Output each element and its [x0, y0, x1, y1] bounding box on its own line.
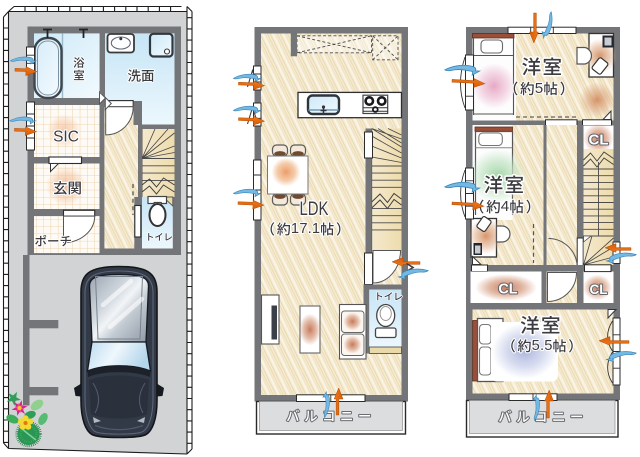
svg-text:SIC: SIC [53, 129, 79, 146]
svg-text:1: 1 [312, 221, 320, 237]
svg-text:5: 5 [532, 338, 540, 354]
svg-text:1: 1 [291, 221, 299, 237]
svg-text:CL: CL [498, 281, 517, 297]
svg-text:4: 4 [501, 198, 509, 215]
svg-text:7: 7 [299, 221, 307, 237]
svg-text:LDK: LDK [300, 198, 329, 220]
svg-text:5: 5 [535, 80, 543, 97]
svg-text:CL: CL [590, 282, 608, 297]
svg-text:5: 5 [544, 338, 552, 354]
svg-text:CL: CL [589, 132, 609, 149]
